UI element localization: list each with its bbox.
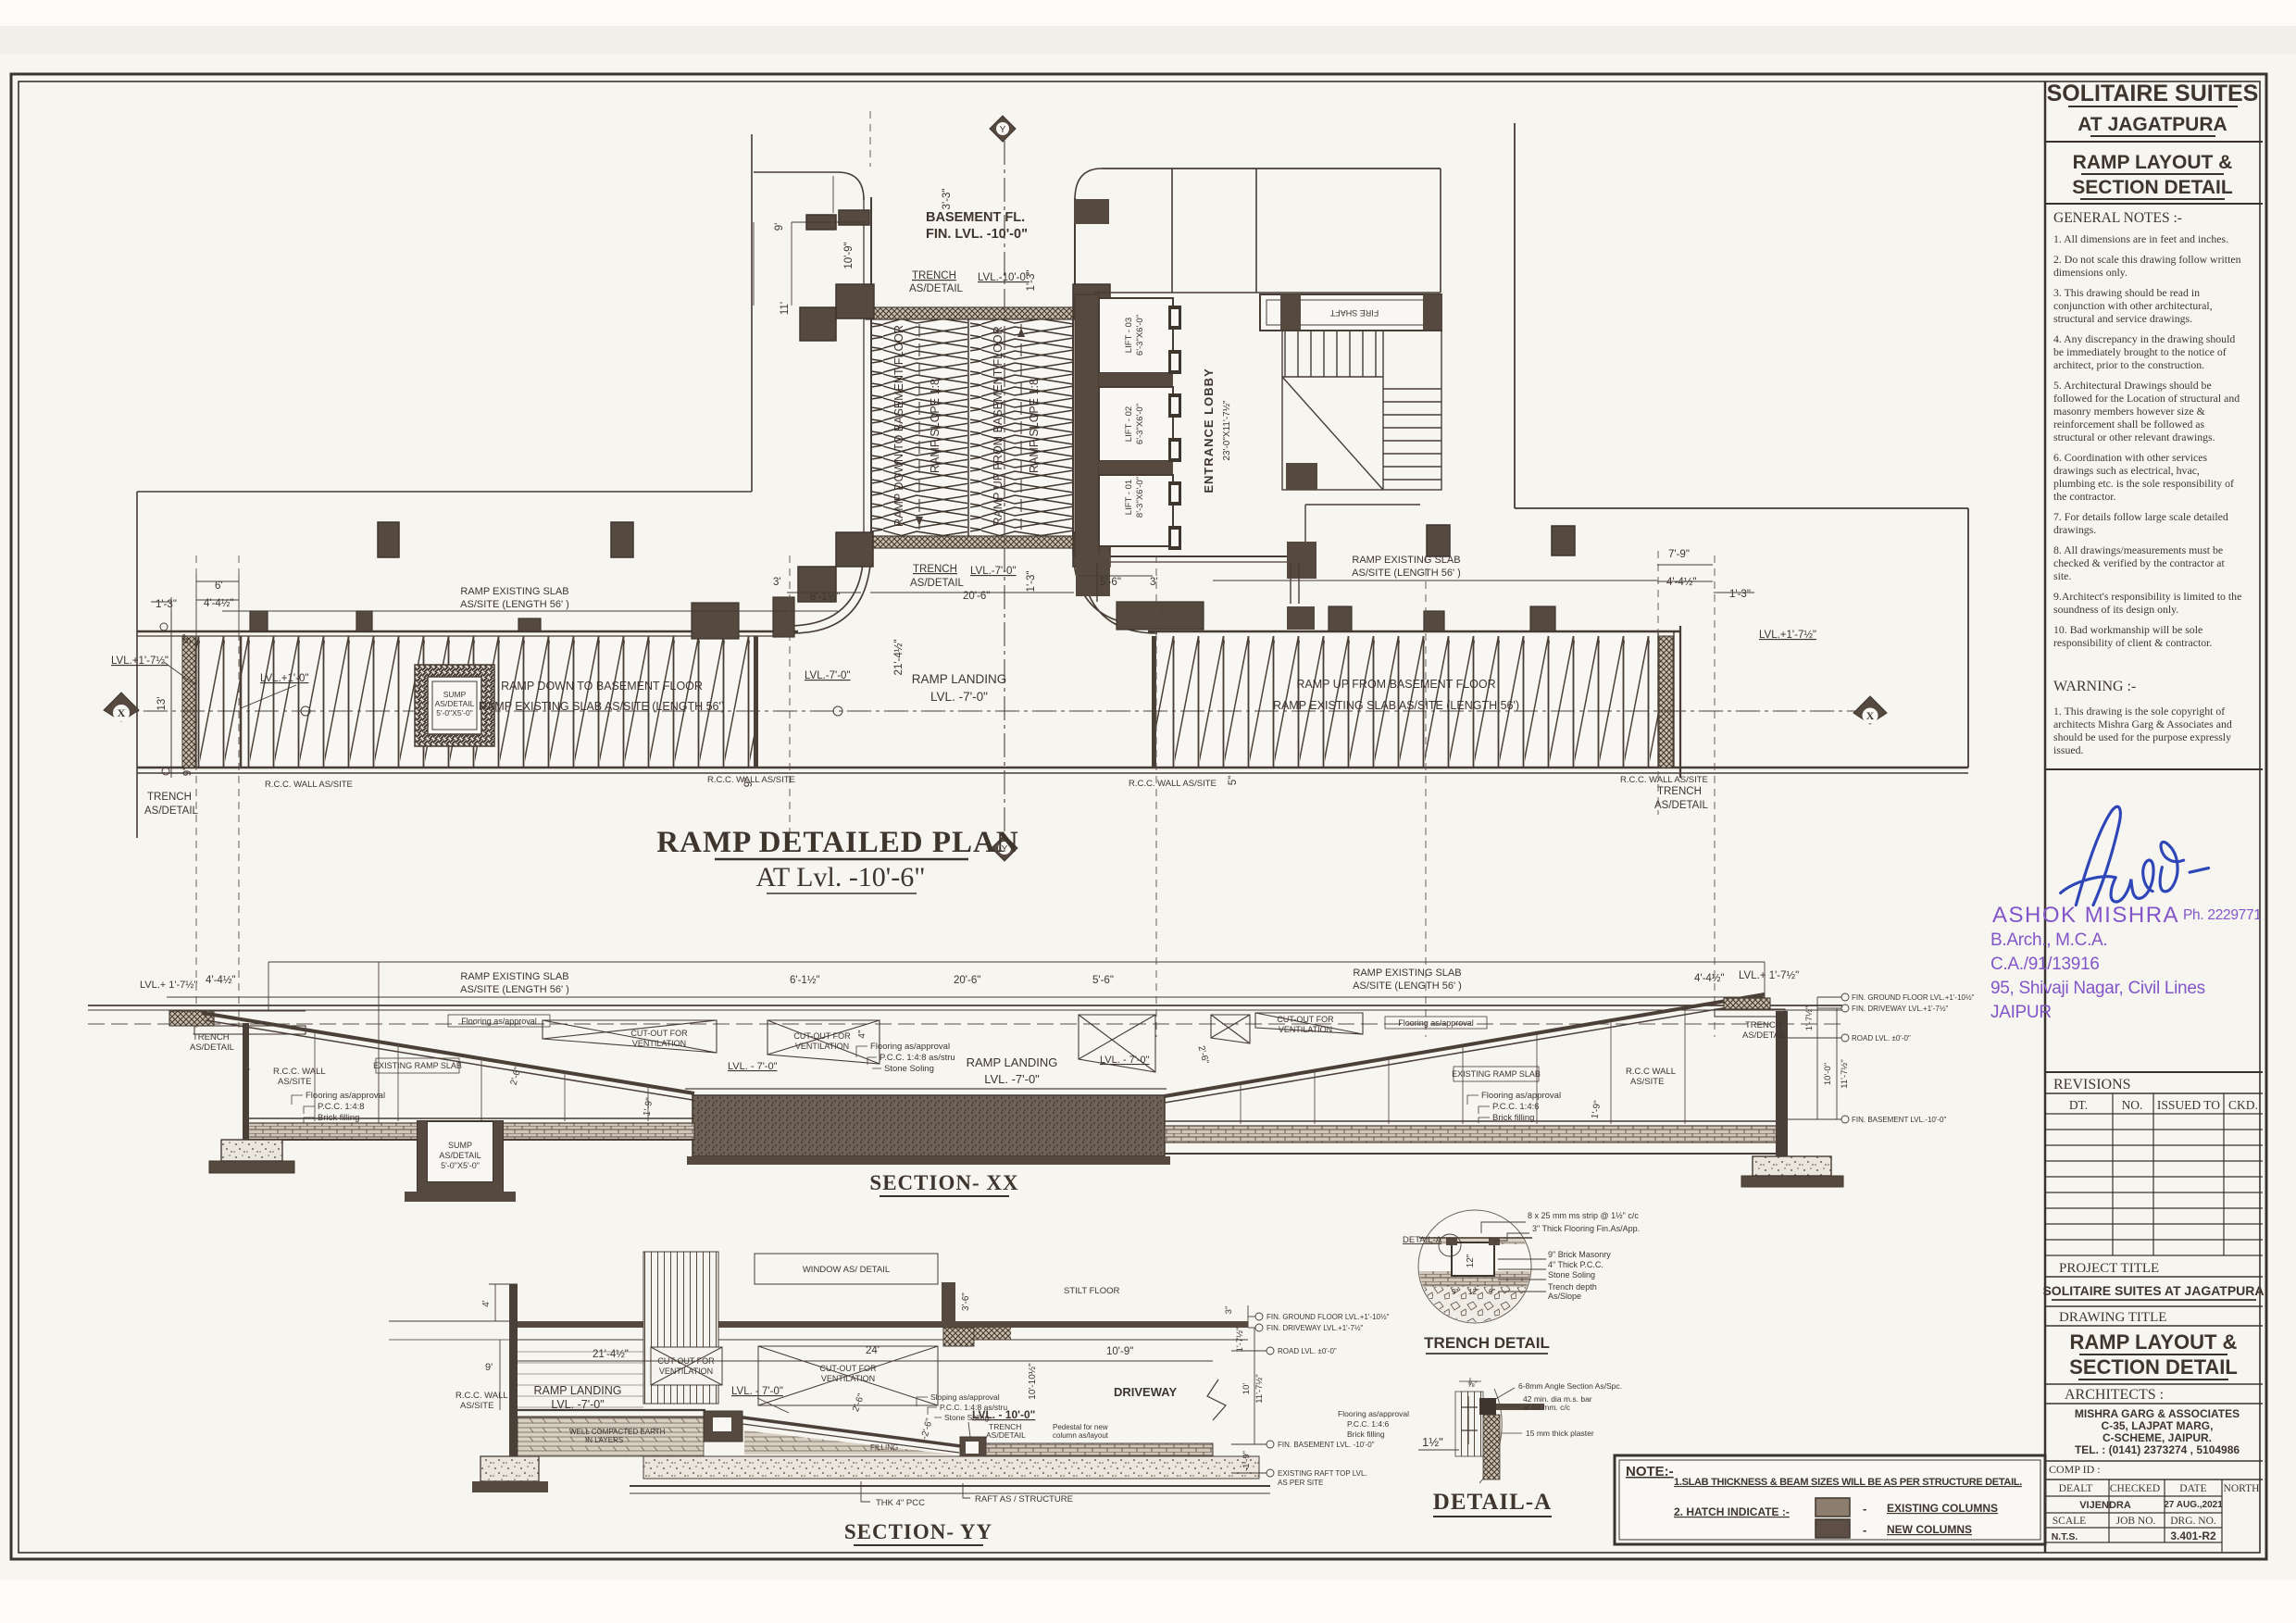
svg-text:FILLING: FILLING xyxy=(870,1443,898,1452)
svg-text:R.C.C. WALL: R.C.C. WALL xyxy=(273,1067,326,1077)
svg-text:23'-0"X11'-7½": 23'-0"X11'-7½" xyxy=(1222,400,1232,461)
svg-text:8. All drawings/measurements m: 8. All drawings/measurements must be xyxy=(2053,543,2223,556)
svg-text:AS/SITE: AS/SITE xyxy=(278,1077,311,1087)
svg-text:conjunction with other archit: conjunction with other architectural, xyxy=(2053,299,2213,312)
svg-text:Flooring as/approval: Flooring as/approval xyxy=(1481,1091,1561,1101)
svg-text:FIN. GROUND FLOOR LVL.+1'-10½": FIN. GROUND FLOOR LVL.+1'-10½" xyxy=(1852,993,1975,1002)
svg-text:-: - xyxy=(1863,1502,1866,1516)
svg-text:SUMP: SUMP xyxy=(443,690,467,699)
svg-text:IN LAYERS: IN LAYERS xyxy=(585,1436,623,1444)
svg-text:12": 12" xyxy=(1468,1288,1479,1296)
svg-text:11'-7½": 11'-7½" xyxy=(1840,1059,1850,1088)
svg-text:8'-3"X6'-0": 8'-3"X6'-0" xyxy=(1135,477,1145,518)
svg-text:RAMP LANDING: RAMP LANDING xyxy=(912,672,1007,686)
svg-text:SECTION DETAIL: SECTION DETAIL xyxy=(2072,177,2233,198)
svg-text:10': 10' xyxy=(1242,1383,1252,1395)
svg-text:the contractor.: the contractor. xyxy=(2053,490,2116,503)
svg-text:5'-0"X5'-0": 5'-0"X5'-0" xyxy=(441,1161,480,1170)
svg-text:⅝": ⅝" xyxy=(1467,1380,1478,1389)
svg-text:9': 9' xyxy=(485,1362,493,1373)
svg-text:6. Coordination with other ser: 6. Coordination with other services xyxy=(2053,451,2208,464)
svg-text:AT Lvl. -10'-6": AT Lvl. -10'-6" xyxy=(756,862,926,893)
svg-text:Flooring as/approval: Flooring as/approval xyxy=(306,1091,385,1101)
svg-text:3.401-R2: 3.401-R2 xyxy=(2170,1529,2216,1542)
svg-text:site.: site. xyxy=(2053,569,2071,582)
svg-text:DRIVEWAY: DRIVEWAY xyxy=(1114,1385,1177,1399)
svg-text:WARNING :-: WARNING :- xyxy=(2053,679,2136,694)
svg-text:plumbing etc. is the sole resp: plumbing etc. is the sole responsibility… xyxy=(2053,477,2234,490)
svg-text:PROJECT TITLE: PROJECT TITLE xyxy=(2059,1261,2159,1276)
svg-text:5'-6": 5'-6" xyxy=(1092,975,1114,986)
svg-text:AS/SITE (LENGTH 56' ): AS/SITE (LENGTH 56' ) xyxy=(460,984,569,995)
svg-text:Brick filling: Brick filling xyxy=(1492,1113,1534,1123)
svg-text:DRG. NO.: DRG. NO. xyxy=(2170,1516,2216,1527)
svg-text:reinforcement shall be followe: reinforcement shall be followed as xyxy=(2053,418,2205,431)
svg-text:VENTILATION: VENTILATION xyxy=(821,1374,875,1383)
svg-text:VENTILATION: VENTILATION xyxy=(1279,1025,1332,1034)
svg-text:WINDOW AS/ DETAIL: WINDOW AS/ DETAIL xyxy=(803,1265,890,1275)
svg-text:9": 9" xyxy=(182,634,193,643)
svg-text:C.A./91/13916: C.A./91/13916 xyxy=(1990,955,2100,974)
svg-text:CHECKED: CHECKED xyxy=(2110,1483,2160,1494)
svg-text:10. Bad workmanship will be so: 10. Bad workmanship will be sole xyxy=(2053,623,2202,636)
svg-text:RAMP DOWN TO BASEMENT FLOOR: RAMP DOWN TO BASEMENT FLOOR xyxy=(501,680,703,693)
svg-text:P.C.C. 1:4:8: P.C.C. 1:4:8 xyxy=(318,1102,365,1112)
svg-text:FIN. GROUND FLOOR LVL.+1'-10½": FIN. GROUND FLOOR LVL.+1'-10½" xyxy=(1267,1313,1390,1321)
svg-text:AS/DETAIL: AS/DETAIL xyxy=(1742,1030,1787,1041)
svg-text:AS/SITE: AS/SITE xyxy=(460,1401,493,1411)
svg-text:REVISIONS: REVISIONS xyxy=(2053,1077,2131,1092)
svg-text:13': 13' xyxy=(156,697,168,711)
svg-text:20'-6": 20'-6" xyxy=(954,975,980,986)
svg-text:LVL.+1'-7½": LVL.+1'-7½" xyxy=(1759,630,1816,641)
svg-text:WELL COMPACTED EARTH: WELL COMPACTED EARTH xyxy=(569,1428,666,1436)
svg-text:X: X xyxy=(118,706,126,719)
svg-text:RAMP SLOPE 1:8: RAMP SLOPE 1:8 xyxy=(1028,379,1041,473)
svg-text:DETAIL-A: DETAIL-A xyxy=(1403,1235,1442,1245)
svg-text:FIN. DRIVEWAY LVL.+1'-7½": FIN. DRIVEWAY LVL.+1'-7½" xyxy=(1267,1324,1363,1332)
svg-text:BASEMENT FL.: BASEMENT FL. xyxy=(926,210,1025,225)
svg-text:EXISTING COLUMNS: EXISTING COLUMNS xyxy=(1887,1502,1998,1515)
svg-text:FIN. DRIVEWAY LVL.+1'-7½": FIN. DRIVEWAY LVL.+1'-7½" xyxy=(1852,1005,1948,1013)
svg-text:11'-7½": 11'-7½" xyxy=(1254,1374,1265,1403)
svg-text:LVL.+1'-0": LVL.+1'-0" xyxy=(260,673,308,684)
svg-text:AS/DETAIL: AS/DETAIL xyxy=(909,283,964,294)
svg-text:LVL. - 7'-0": LVL. - 7'-0" xyxy=(728,1061,778,1072)
svg-text:soundness of its design only.: soundness of its design only. xyxy=(2053,603,2178,616)
svg-text:JAIPUR: JAIPUR xyxy=(1990,1003,2052,1022)
svg-text:CUT-OUT FOR: CUT-OUT FOR xyxy=(630,1029,688,1038)
svg-text:Trench depth: Trench depth xyxy=(1548,1282,1597,1292)
svg-text:5. Architectural Drawings shou: 5. Architectural Drawings should be xyxy=(2053,379,2212,392)
svg-text:R.C.C. WALL AS/SITE: R.C.C. WALL AS/SITE xyxy=(1129,779,1217,789)
svg-text:3': 3' xyxy=(773,577,781,588)
svg-text:1.SLAB THICKNESS & BEAM SIZES: 1.SLAB THICKNESS & BEAM SIZES WILL BE AS… xyxy=(1674,1477,2022,1488)
svg-text:CUT-OUT FOR: CUT-OUT FOR xyxy=(819,1364,877,1373)
svg-text:NORTH: NORTH xyxy=(2224,1483,2260,1494)
svg-text:EXISTING RAMP SLAB: EXISTING RAMP SLAB xyxy=(373,1061,462,1070)
svg-text:LVL.-7'-0": LVL.-7'-0" xyxy=(805,670,851,681)
svg-text:TRENCH: TRENCH xyxy=(147,792,192,803)
svg-text:Brick filling: Brick filling xyxy=(318,1113,359,1123)
svg-text:RAMP DETAILED PLAN: RAMP DETAILED PLAN xyxy=(656,826,1018,859)
svg-text:TRENCH: TRENCH xyxy=(912,270,956,281)
svg-text:11': 11' xyxy=(780,302,791,315)
svg-text:1'-7½": 1'-7½" xyxy=(1804,1006,1815,1031)
svg-text:1'-7½": 1'-7½" xyxy=(1235,1328,1245,1353)
svg-text:CKD.: CKD. xyxy=(2228,1098,2258,1112)
svg-text:5'-6": 5'-6" xyxy=(1100,577,1121,588)
svg-text:SOLITAIRE SUITES: SOLITAIRE SUITES xyxy=(2047,81,2259,106)
svg-text:3": 3" xyxy=(1224,1306,1234,1315)
svg-text:10'-9": 10'-9" xyxy=(843,242,855,268)
svg-text:DEALT: DEALT xyxy=(2059,1483,2093,1494)
svg-text:AS/SITE (LENGTH 56' ): AS/SITE (LENGTH 56' ) xyxy=(1352,568,1461,579)
svg-text:RAMP DOWN TO BASEMENT FLOOR: RAMP DOWN TO BASEMENT FLOOR xyxy=(892,325,905,527)
svg-text:LVL.-10'-0": LVL.-10'-0" xyxy=(978,272,1029,283)
svg-text:1½": 1½" xyxy=(1422,1435,1443,1449)
svg-text:AS/DETAIL: AS/DETAIL xyxy=(435,699,475,708)
svg-text:LVL.+ 1'-7½": LVL.+ 1'-7½" xyxy=(140,980,197,991)
svg-text:TRENCH: TRENCH xyxy=(1657,786,1702,797)
svg-text:4" Thick P.C.C.: 4" Thick P.C.C. xyxy=(1548,1260,1603,1269)
svg-text:Brick filling: Brick filling xyxy=(1347,1429,1385,1439)
svg-text:P.C.C. 1:4:8 as/stru: P.C.C. 1:4:8 as/stru xyxy=(880,1053,955,1063)
svg-text:-: - xyxy=(1863,1523,1866,1537)
svg-text:RAMP LANDING: RAMP LANDING xyxy=(967,1055,1058,1069)
svg-text:4'-4½": 4'-4½" xyxy=(1666,577,1697,588)
svg-text:DATE: DATE xyxy=(2179,1483,2206,1494)
svg-text:R.C.C. WALL AS/SITE: R.C.C. WALL AS/SITE xyxy=(707,775,795,785)
svg-text:architect, prior to the constr: architect, prior to the construction. xyxy=(2053,358,2204,371)
svg-text:THK 4" PCC: THK 4" PCC xyxy=(876,1498,925,1508)
svg-text:RAMP EXISTING SLAB: RAMP EXISTING SLAB xyxy=(460,586,568,597)
svg-text:10'-9": 10'-9" xyxy=(1106,1346,1133,1357)
svg-text:SCALE: SCALE xyxy=(2053,1516,2086,1527)
svg-text:EXISTING RAFT TOP LVL.: EXISTING RAFT TOP LVL. xyxy=(1278,1469,1367,1478)
svg-text:15 mm thick plaster: 15 mm thick plaster xyxy=(1526,1429,1594,1438)
svg-text:LVL. - 7'-0": LVL. - 7'-0" xyxy=(731,1386,783,1397)
svg-text:9.Architect's responsibility i: 9.Architect's responsibility is limited … xyxy=(2053,590,2241,603)
svg-text:Pedestal for new: Pedestal for new xyxy=(1053,1423,1108,1431)
svg-text:R.C.C. WALL: R.C.C. WALL xyxy=(455,1391,508,1401)
svg-text:TRENCH DETAIL: TRENCH DETAIL xyxy=(1424,1334,1550,1352)
svg-text:AS/DETAIL: AS/DETAIL xyxy=(986,1430,1026,1440)
svg-text:1'-3": 1'-3" xyxy=(1026,270,1037,292)
svg-text:RAMP EXISTING SLAB: RAMP EXISTING SLAB xyxy=(1353,968,1461,979)
svg-text:SECTION- YY: SECTION- YY xyxy=(844,1520,992,1543)
svg-text:Stone Soling: Stone Soling xyxy=(884,1064,934,1074)
svg-text:RAMP LAYOUT &: RAMP LAYOUT & xyxy=(2070,1330,2238,1354)
svg-text:As/Slope: As/Slope xyxy=(1548,1292,1581,1301)
svg-text:RAMP SLOPE 1:8: RAMP SLOPE 1:8 xyxy=(929,379,942,473)
svg-text:VENTILATION: VENTILATION xyxy=(659,1367,713,1376)
svg-text:21'-4½": 21'-4½" xyxy=(593,1349,629,1360)
svg-text:NO.: NO. xyxy=(2122,1098,2143,1112)
svg-text:checked & verified by the cont: checked & verified by the contractor at xyxy=(2053,556,2225,569)
svg-text:AT JAGATPURA: AT JAGATPURA xyxy=(2078,114,2227,135)
svg-text:FIRE SHAFT: FIRE SHAFT xyxy=(1329,308,1379,318)
svg-text:1. All dimensions are in feet: 1. All dimensions are in feet and inches… xyxy=(2053,232,2228,245)
svg-text:RAMP UP FROM BASEMENT FLOOR: RAMP UP FROM BASEMENT FLOOR xyxy=(992,326,1004,525)
svg-text:architects Mishra Garg & Assoc: architects Mishra Garg & Associates and xyxy=(2053,718,2232,730)
svg-text:9" Brick Masonry: 9" Brick Masonry xyxy=(1548,1250,1611,1259)
svg-text:CUT-OUT FOR: CUT-OUT FOR xyxy=(1277,1015,1334,1024)
svg-text:LVL. -7'-0": LVL. -7'-0" xyxy=(984,1072,1040,1086)
svg-text:FIN. BASEMENT LVL. -10'-0": FIN. BASEMENT LVL. -10'-0" xyxy=(1278,1441,1375,1449)
svg-text:C-SCHEME, JAIPUR.: C-SCHEME, JAIPUR. xyxy=(2103,1431,2212,1444)
svg-text:SUMP: SUMP xyxy=(448,1141,472,1150)
svg-text:TRENCH: TRENCH xyxy=(913,564,957,575)
svg-text:ROAD LVL. ±0'-0": ROAD LVL. ±0'-0" xyxy=(1852,1034,1911,1042)
svg-text:LIFT - 03: LIFT - 03 xyxy=(1124,318,1134,353)
svg-text:8 x 25 mm ms strip @ 1½" c/c: 8 x 25 mm ms strip @ 1½" c/c xyxy=(1528,1211,1639,1220)
svg-text:drawings.: drawings. xyxy=(2053,523,2096,536)
svg-text:95, Shivaji Nagar, Civil Lines: 95, Shivaji Nagar, Civil Lines xyxy=(1990,979,2205,998)
svg-text:TEL. : (0141) 2373274 , 510498: TEL. : (0141) 2373274 , 5104986 xyxy=(2075,1443,2240,1456)
svg-text:EXISTING RAMP SLAB: EXISTING RAMP SLAB xyxy=(1452,1069,1541,1079)
svg-text:4": 4" xyxy=(857,1030,867,1039)
svg-text:NEW COLUMNS: NEW COLUMNS xyxy=(1887,1523,1972,1536)
svg-text:SECTION DETAIL: SECTION DETAIL xyxy=(2069,1355,2238,1379)
svg-text:P.C.C. 1:4:6: P.C.C. 1:4:6 xyxy=(1347,1419,1389,1429)
svg-text:3" Thick Flooring Fin.As/App.: 3" Thick Flooring Fin.As/App. xyxy=(1532,1224,1640,1233)
svg-text:1'-3": 1'-3" xyxy=(1729,589,1751,600)
svg-text:AS/DETAIL: AS/DETAIL xyxy=(190,1042,234,1053)
svg-text:VENTILATION: VENTILATION xyxy=(632,1039,686,1048)
svg-text:RAMP EXISTING SLAB AS/SITE (L: RAMP EXISTING SLAB AS/SITE (LENGTH 56') xyxy=(1273,699,1519,712)
svg-text:Flooring as/approval: Flooring as/approval xyxy=(1398,1018,1474,1028)
svg-text:SOLITAIRE SUITES AT JAGATPURA: SOLITAIRE SUITES AT JAGATPURA xyxy=(2042,1283,2264,1298)
svg-text:10'-10½": 10'-10½" xyxy=(1028,1363,1038,1400)
svg-text:DRAWING TITLE: DRAWING TITLE xyxy=(2059,1310,2166,1325)
svg-text:4. Any discrepancy in the draw: 4. Any discrepancy in the drawing should xyxy=(2053,332,2235,345)
svg-text:Stone Soling: Stone Soling xyxy=(944,1413,989,1422)
svg-text:24': 24' xyxy=(866,1345,880,1356)
svg-text:R.C.C. WALL AS/SITE: R.C.C. WALL AS/SITE xyxy=(265,780,353,790)
svg-text:AS/DETAIL: AS/DETAIL xyxy=(144,805,199,817)
svg-text:MISHRA GARG & ASSOCIATES: MISHRA GARG & ASSOCIATES xyxy=(2075,1407,2240,1420)
svg-text:responsibility of client & con: responsibility of client & contractor. xyxy=(2053,636,2212,649)
svg-text:Stone Soling: Stone Soling xyxy=(1548,1270,1595,1280)
svg-text:should be used for the purpose: should be used for the purpose expressly xyxy=(2053,730,2231,743)
svg-text:AS/DETAIL: AS/DETAIL xyxy=(439,1151,480,1160)
svg-text:LVL. -7'-0": LVL. -7'-0" xyxy=(930,690,988,704)
svg-text:followed for the Location of s: followed for the Location of structural … xyxy=(2053,392,2240,405)
svg-text:Y: Y xyxy=(1000,125,1006,135)
svg-text:C-35, LAJPAT MARG,: C-35, LAJPAT MARG, xyxy=(2102,1419,2214,1432)
svg-text:12": 12" xyxy=(1466,1254,1476,1267)
svg-text:column as/layout: column as/layout xyxy=(1053,1431,1109,1440)
svg-text:GENERAL NOTES :-: GENERAL NOTES :- xyxy=(2053,210,2182,226)
svg-text:LVL. - 7'-0": LVL. - 7'-0" xyxy=(1100,1055,1150,1066)
svg-text:LVL.-7'-0": LVL.-7'-0" xyxy=(970,566,1017,577)
svg-text:ENTRANCE LOBBY: ENTRANCE LOBBY xyxy=(1202,368,1216,493)
svg-text:ARCHITECTS :: ARCHITECTS : xyxy=(2065,1387,2164,1403)
svg-text:9": 9" xyxy=(1452,1288,1458,1296)
svg-text:ISSUED TO: ISSUED TO xyxy=(2157,1098,2220,1112)
svg-text:STILT FLOOR: STILT FLOOR xyxy=(1064,1286,1119,1296)
svg-text:1'-3": 1'-3" xyxy=(1026,571,1037,593)
svg-text:SECTION- XX: SECTION- XX xyxy=(869,1171,1018,1194)
svg-text:VENTILATION: VENTILATION xyxy=(795,1042,849,1051)
svg-text:AS/SITE: AS/SITE xyxy=(1630,1077,1664,1087)
svg-text:4'-4½": 4'-4½" xyxy=(1694,973,1725,984)
svg-text:dimensions only.: dimensions only. xyxy=(2053,266,2128,279)
svg-text:AS/DETAIL: AS/DETAIL xyxy=(1654,800,1709,811)
svg-text:3'-6": 3'-6" xyxy=(961,1292,971,1311)
svg-text:10'-0": 10'-0" xyxy=(1823,1063,1833,1085)
svg-text:RAFT AS / STRUCTURE: RAFT AS / STRUCTURE xyxy=(975,1494,1073,1504)
svg-text:4': 4' xyxy=(481,1300,492,1307)
svg-text:VIJENDRA: VIJENDRA xyxy=(2079,1500,2131,1511)
svg-text:LVL.+1'-7½": LVL.+1'-7½" xyxy=(111,655,168,667)
svg-text:6-8mm Angle Section As/Spc.: 6-8mm Angle Section As/Spc. xyxy=(1518,1381,1622,1391)
svg-text:AS/SITE (LENGTH 56' ): AS/SITE (LENGTH 56' ) xyxy=(1353,980,1462,992)
svg-text:LVL. -7'-0": LVL. -7'-0" xyxy=(551,1398,604,1411)
svg-text:structural or other relevant d: structural or other relevant drawings. xyxy=(2053,431,2215,443)
svg-text:Ph. 2229771: Ph. 2229771 xyxy=(2183,907,2262,923)
svg-text:6'-3"X6'-0": 6'-3"X6'-0" xyxy=(1135,404,1145,444)
svg-text:DT.: DT. xyxy=(2069,1098,2088,1112)
svg-text:R.C.C WALL: R.C.C WALL xyxy=(1626,1067,1676,1077)
svg-text:B.Arch., M.C.A.: B.Arch., M.C.A. xyxy=(1990,930,2107,950)
svg-text:AS/DETAIL: AS/DETAIL xyxy=(910,578,965,589)
svg-text:JOB NO.: JOB NO. xyxy=(2116,1516,2156,1527)
svg-text:be immediately brought to the: be immediately brought to the notice of xyxy=(2053,345,2227,358)
svg-text:issued.: issued. xyxy=(2053,743,2083,756)
svg-text:NOTE:-: NOTE:- xyxy=(1626,1464,1674,1479)
svg-text:N.T.S.: N.T.S. xyxy=(2052,1531,2078,1542)
svg-text:3'-3": 3'-3" xyxy=(942,189,953,210)
svg-text:ASHOK MISHRA: ASHOK MISHRA xyxy=(1992,903,2179,928)
svg-text:9": 9" xyxy=(1489,1288,1495,1296)
svg-text:AS/SITE (LENGTH 56' ): AS/SITE (LENGTH 56' ) xyxy=(460,599,569,610)
svg-text:2. HATCH INDICATE :-: 2. HATCH INDICATE :- xyxy=(1674,1505,1790,1518)
svg-text:LVL.+ 1'-7½": LVL.+ 1'-7½" xyxy=(1739,970,1799,981)
svg-text:TRENCH: TRENCH xyxy=(193,1032,230,1042)
svg-text:RAMP UP FROM BASEMENT FLOOR: RAMP UP FROM BASEMENT FLOOR xyxy=(1296,678,1495,691)
svg-text:6': 6' xyxy=(215,581,223,592)
svg-text:RAMP EXISTING SLAB: RAMP EXISTING SLAB xyxy=(460,971,568,982)
svg-text:structural and service drawing: structural and service drawings. xyxy=(2053,312,2192,325)
svg-text:21'-4½": 21'-4½" xyxy=(893,640,905,676)
svg-text:DETAIL-A: DETAIL-A xyxy=(1433,1490,1552,1515)
svg-text:R.C.C. WALL AS/SITE: R.C.C. WALL AS/SITE xyxy=(1620,775,1708,785)
svg-text:9": 9" xyxy=(182,767,193,776)
svg-text:8'-1½": 8'-1½" xyxy=(810,592,841,603)
svg-text:9': 9' xyxy=(774,223,785,231)
svg-text:ROAD LVL. ±0'-0": ROAD LVL. ±0'-0" xyxy=(1278,1347,1337,1355)
svg-text:P.C.C. 1:4:8 as/stru: P.C.C. 1:4:8 as/stru xyxy=(940,1403,1007,1412)
svg-text:Flooring as/approval: Flooring as/approval xyxy=(870,1042,950,1052)
svg-text:5": 5" xyxy=(1228,776,1239,785)
svg-text:CUT-OUT FOR: CUT-OUT FOR xyxy=(793,1031,851,1041)
svg-text:P.C.C. 1:4:6: P.C.C. 1:4:6 xyxy=(1492,1102,1540,1112)
svg-text:Flooring as/approval: Flooring as/approval xyxy=(1338,1409,1409,1418)
svg-text:7'-9": 7'-9" xyxy=(1668,549,1690,560)
svg-text:7. For details follow large sc: 7. For details follow large scale detail… xyxy=(2053,510,2228,523)
svg-text:6'-3"X6'-0": 6'-3"X6'-0" xyxy=(1135,315,1145,356)
svg-text:4'-4½": 4'-4½" xyxy=(206,975,236,986)
svg-text:5'-0"X5'-0": 5'-0"X5'-0" xyxy=(436,708,473,718)
svg-text:COMP ID :: COMP ID : xyxy=(2049,1463,2101,1476)
svg-text:at 50 mm. c/c: at 50 mm. c/c xyxy=(1523,1403,1571,1412)
svg-text:RAMP LANDING: RAMP LANDING xyxy=(534,1384,622,1397)
svg-text:RAMP LAYOUT &: RAMP LAYOUT & xyxy=(2073,152,2233,173)
svg-text:RAMP EXISTING SLAB: RAMP EXISTING SLAB xyxy=(1352,555,1460,566)
svg-text:FIN. BASEMENT LVL.-10'-0": FIN. BASEMENT LVL.-10'-0" xyxy=(1852,1116,1946,1124)
svg-text:X: X xyxy=(1866,709,1875,722)
svg-text:AS PER SITE: AS PER SITE xyxy=(1278,1479,1323,1487)
svg-text:LIFT - 02: LIFT - 02 xyxy=(1124,406,1134,442)
svg-text:RAMP EXISTING SLAB AS/SITE (L: RAMP EXISTING SLAB AS/SITE (LENGTH 56') xyxy=(479,700,725,713)
svg-text:1'-3": 1'-3" xyxy=(156,599,177,610)
svg-text:LIFT - 01: LIFT - 01 xyxy=(1124,480,1134,515)
svg-text:2. Do not scale this drawing f: 2. Do not scale this drawing follow writ… xyxy=(2053,253,2241,266)
svg-text:1. This drawing is the sole co: 1. This drawing is the sole copyright of xyxy=(2053,705,2225,718)
svg-text:27 AUG.,2021: 27 AUG.,2021 xyxy=(2164,1500,2223,1510)
svg-text:TRENCH: TRENCH xyxy=(1745,1020,1782,1030)
svg-text:3. This drawing should be read: 3. This drawing should be read in xyxy=(2053,286,2200,299)
svg-text:FIN. LVL. -10'-0": FIN. LVL. -10'-0" xyxy=(926,227,1028,242)
svg-text:6'-1½": 6'-1½" xyxy=(790,975,820,986)
svg-text:Flooring as/approval: Flooring as/approval xyxy=(461,1017,537,1026)
svg-text:Sloping as/approval: Sloping as/approval xyxy=(930,1392,1000,1402)
svg-text:masonry members however size &: masonry members however size & xyxy=(2053,405,2205,418)
svg-text:-1'-9": -1'-9" xyxy=(1242,1451,1252,1471)
svg-text:drawings such as electrical, h: drawings such as electrical, hvac, xyxy=(2053,464,2200,477)
